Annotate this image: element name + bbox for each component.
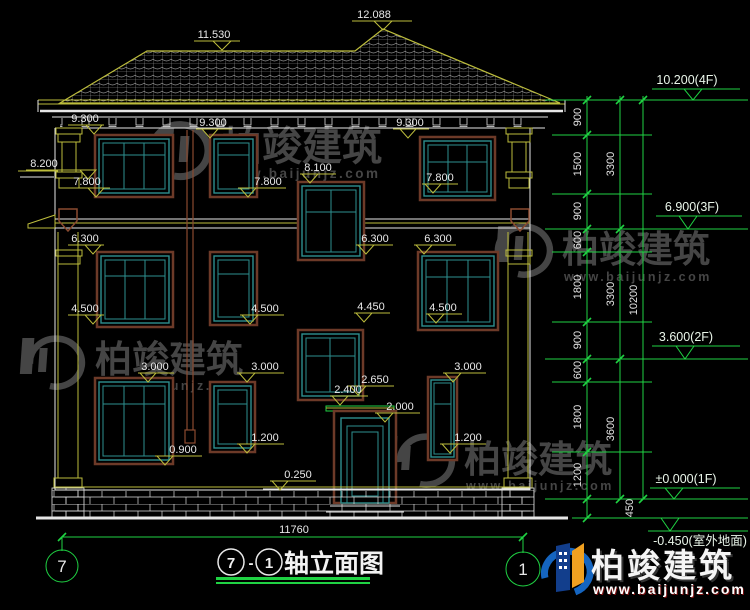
window-2f-left xyxy=(97,252,173,327)
svg-text:1.200: 1.200 xyxy=(251,432,279,444)
title-block: 7 - 1 轴立面图 xyxy=(216,549,384,584)
brick-band xyxy=(55,491,530,517)
svg-text:6.900(3F): 6.900(3F) xyxy=(665,200,719,214)
svg-text:9.300: 9.300 xyxy=(71,113,99,125)
level-marker-3f: 6.900(3F) xyxy=(656,200,742,229)
svg-text:±0.000(1F): ±0.000(1F) xyxy=(655,472,716,486)
svg-text:600: 600 xyxy=(572,361,584,379)
svg-text:10200: 10200 xyxy=(628,285,640,316)
svg-text:1800: 1800 xyxy=(572,275,584,299)
svg-text:900: 900 xyxy=(572,108,584,126)
svg-text:7.800: 7.800 xyxy=(254,176,282,188)
floor-band-3f xyxy=(55,219,530,228)
stairwell-window-upper xyxy=(298,182,364,260)
svg-text:450: 450 xyxy=(624,499,636,517)
logo-brand-url: www.baijunjz.com xyxy=(592,581,746,597)
dim-label: 12.088 xyxy=(352,9,412,30)
svg-text:0.900: 0.900 xyxy=(169,444,197,456)
dentil-row xyxy=(60,118,540,127)
svg-text:6.300: 6.300 xyxy=(71,233,99,245)
svg-text:7: 7 xyxy=(227,555,235,572)
span-dimension: 11760 xyxy=(279,524,309,536)
dim-label: 9.300 xyxy=(68,113,104,134)
svg-text:900: 900 xyxy=(572,202,584,220)
svg-text:4.500: 4.500 xyxy=(429,302,457,314)
svg-text:3.000: 3.000 xyxy=(141,361,169,373)
svg-text:8.200: 8.200 xyxy=(30,158,58,170)
svg-text:7.800: 7.800 xyxy=(73,176,101,188)
watermark-name: 柏竣建筑 xyxy=(562,228,710,270)
svg-text:8.100: 8.100 xyxy=(304,162,332,174)
svg-text:3600: 3600 xyxy=(605,417,617,441)
left-cornice-return xyxy=(18,171,58,228)
axis-bubble-left: 7 xyxy=(46,550,78,582)
svg-text:3300: 3300 xyxy=(605,152,617,176)
svg-text:3.000: 3.000 xyxy=(454,361,482,373)
roof-outline xyxy=(60,29,560,103)
svg-text:3300: 3300 xyxy=(605,282,617,306)
svg-text:4.500: 4.500 xyxy=(251,303,279,315)
svg-text:0.250: 0.250 xyxy=(284,469,312,481)
eave-cornice xyxy=(38,100,565,128)
svg-text:600: 600 xyxy=(572,231,584,249)
axis-bubble-right: 1 xyxy=(506,552,540,586)
watermark-url: www.baijunjz.com xyxy=(563,270,712,284)
title-underline-2 xyxy=(216,582,370,584)
svg-text:7.800: 7.800 xyxy=(426,172,454,184)
svg-text:3.000: 3.000 xyxy=(251,361,279,373)
watermark-name: 柏竣建筑 xyxy=(464,438,612,480)
window-2f-right xyxy=(418,252,498,330)
svg-text:6.300: 6.300 xyxy=(424,233,452,245)
svg-text:-0.450(室外地面): -0.450(室外地面) xyxy=(653,533,747,548)
dim-label: 3.000 xyxy=(237,361,284,382)
svg-text:10.200(4F): 10.200(4F) xyxy=(656,73,717,87)
logo-brand-name: 柏竣建筑 xyxy=(591,547,735,584)
svg-text:1.200: 1.200 xyxy=(454,432,482,444)
dim-label: 9.300 xyxy=(393,117,429,138)
dim-label: 11.530 xyxy=(194,29,240,50)
svg-text:1: 1 xyxy=(518,560,527,579)
svg-text:1200: 1200 xyxy=(572,463,584,487)
svg-text:6.300: 6.300 xyxy=(361,233,389,245)
svg-text:1: 1 xyxy=(265,555,273,572)
drawing-title-text: 轴立面图 xyxy=(284,549,384,578)
brand-logo: 柏竣建筑 www.baijunjz.com xyxy=(544,543,745,597)
svg-text:1800: 1800 xyxy=(572,405,584,429)
hip-roof xyxy=(60,29,560,103)
window-1f-small xyxy=(428,377,457,460)
title-underline xyxy=(216,577,370,580)
level-marker-4f: 10.200(4F) xyxy=(652,73,740,100)
window-1f-mid xyxy=(210,382,255,452)
level-marker-ground: -0.450(室外地面) xyxy=(648,518,748,548)
svg-text:9.300: 9.300 xyxy=(396,117,424,129)
window-2f-mid xyxy=(210,252,257,325)
svg-text:4.450: 4.450 xyxy=(357,301,385,313)
window-1f-left xyxy=(95,378,173,464)
logo-building-dark xyxy=(556,543,570,592)
svg-text:2.000: 2.000 xyxy=(386,401,414,413)
plinth xyxy=(55,487,530,517)
svg-text:1500: 1500 xyxy=(572,152,584,176)
cad-elevation-screenshot: 柏竣建筑 www.baijunjz.com 柏竣建筑 www.baijunjz.… xyxy=(0,0,750,610)
svg-text:2.400: 2.400 xyxy=(334,384,362,396)
svg-text:12.088: 12.088 xyxy=(357,9,391,21)
svg-text:11.530: 11.530 xyxy=(198,29,231,41)
floor-level-markers: 10.200(4F) 6.900(3F) 3.600(2F) ±0.000(1F… xyxy=(648,73,748,548)
level-marker-1f: ±0.000(1F) xyxy=(650,472,740,499)
svg-text:2.650: 2.650 xyxy=(361,374,389,386)
svg-text:3.600(2F): 3.600(2F) xyxy=(659,330,713,344)
svg-text:9.300: 9.300 xyxy=(199,117,227,129)
svg-text:7: 7 xyxy=(57,557,66,576)
svg-text:-: - xyxy=(249,555,254,572)
dim-label: 4.450 xyxy=(354,301,390,322)
svg-text:4.500: 4.500 xyxy=(71,303,99,315)
elevation-drawing: 柏竣建筑 www.baijunjz.com 柏竣建筑 www.baijunjz.… xyxy=(0,0,750,610)
svg-text:900: 900 xyxy=(572,331,584,349)
watermark-url: www.baijunjz.com xyxy=(465,479,614,493)
level-marker-2f: 3.600(2F) xyxy=(652,330,740,359)
watermark-name: 柏竣建筑 xyxy=(95,338,243,380)
